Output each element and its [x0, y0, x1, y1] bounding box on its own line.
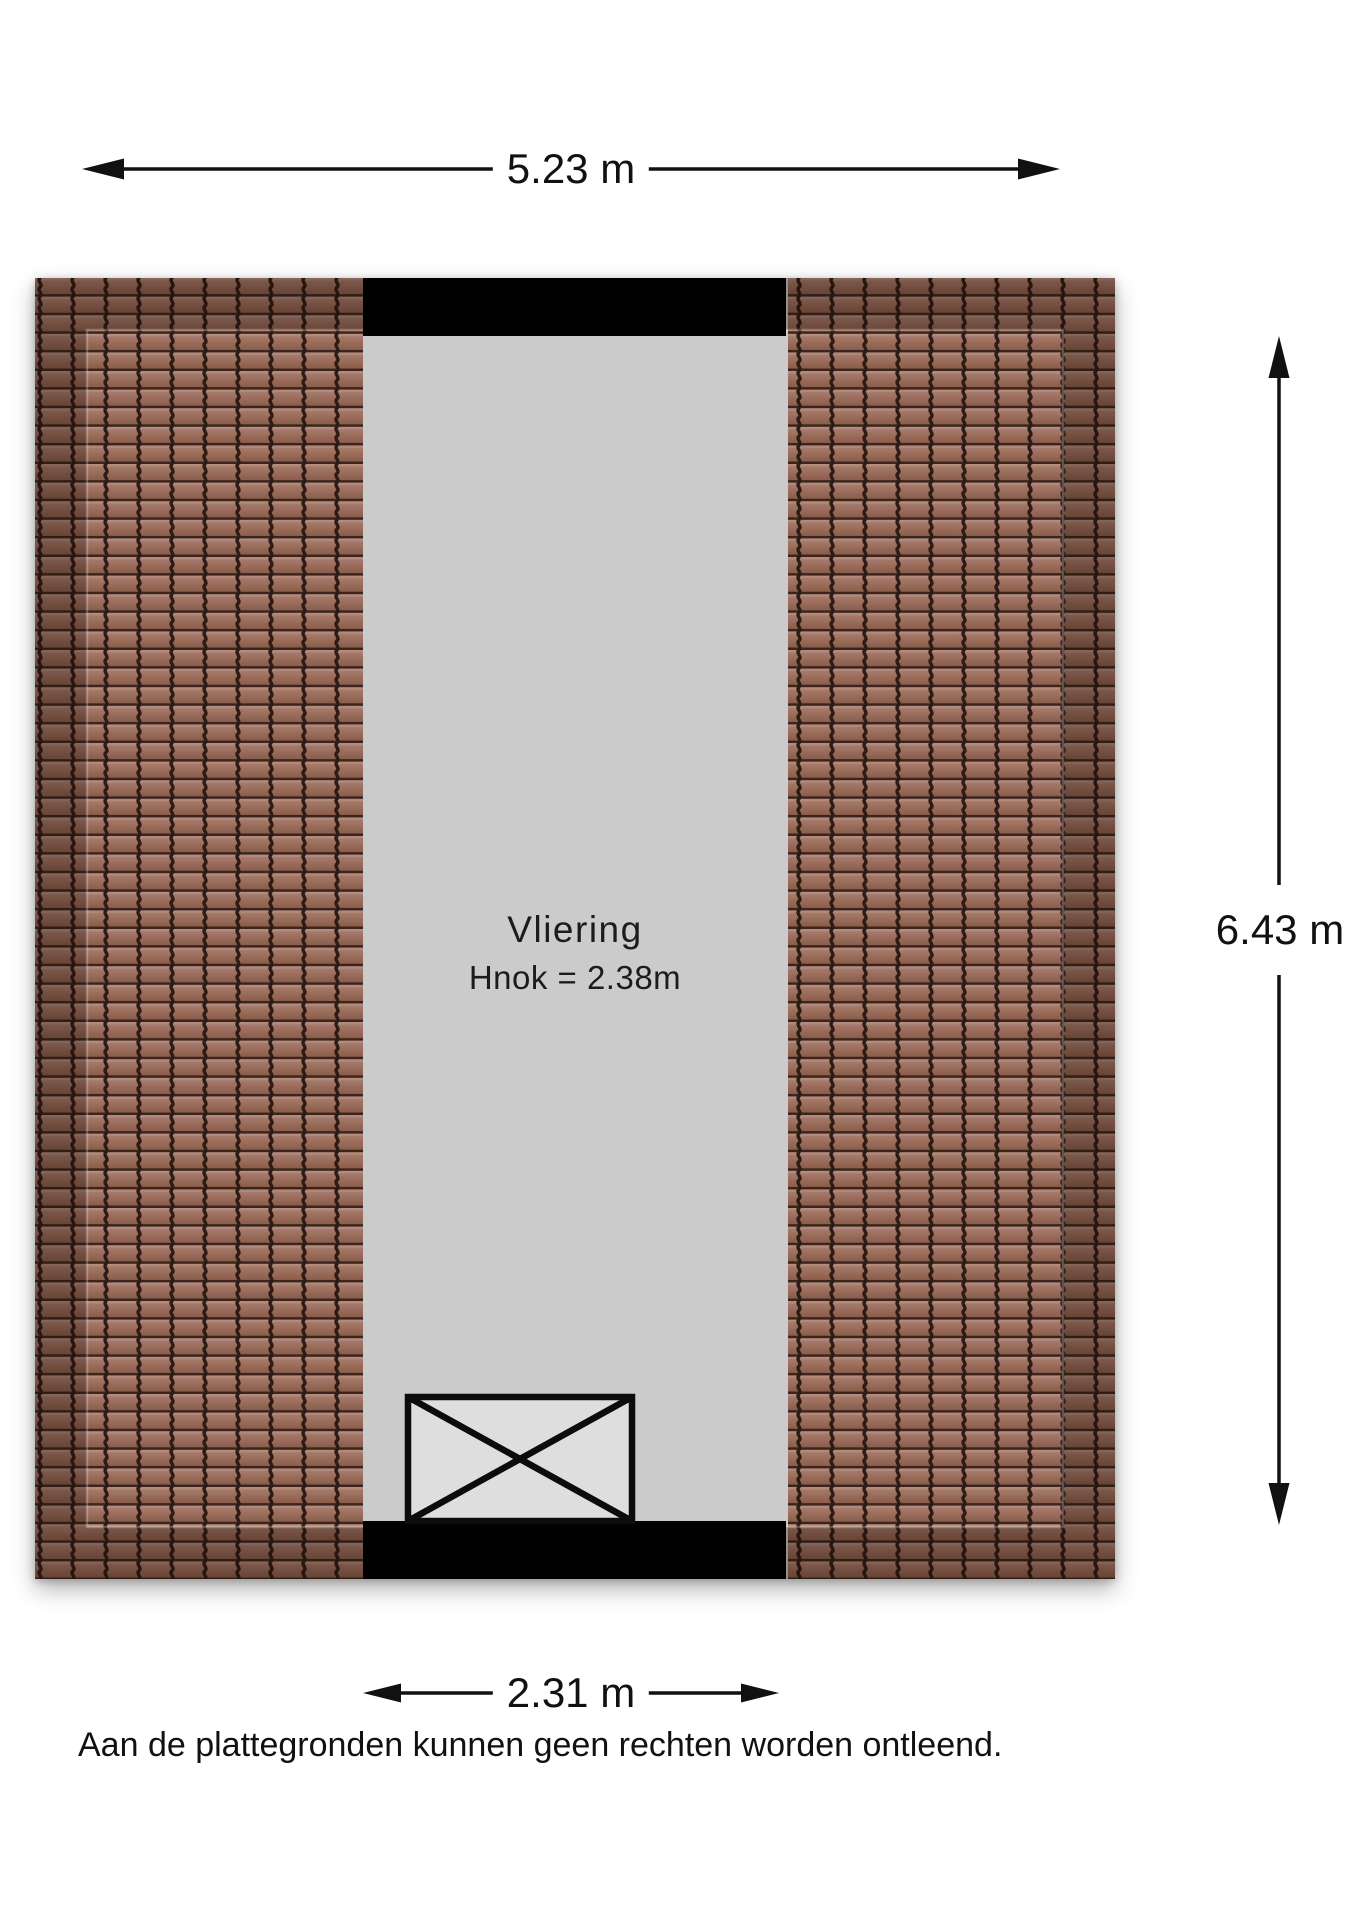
- wall-bottom: [363, 1521, 786, 1579]
- disclaimer-text: Aan de plattegronden kunnen geen rechten…: [78, 1726, 1002, 1765]
- dimension-label-bottom-width: 2.31 m: [493, 1662, 649, 1724]
- room-label: Vliering: [507, 909, 642, 951]
- wall-top: [363, 278, 786, 336]
- floorplan-page: 5.23 m 6.43 m 2.31 m Vliering Hnok = 2.3…: [0, 0, 1358, 1920]
- stair-opening-symbol: [408, 1397, 632, 1521]
- dimension-label-top-width: 5.23 m: [493, 138, 649, 200]
- room-height-label: Hnok = 2.38m: [469, 959, 681, 997]
- dimension-label-right-height: 6.43 m: [1202, 885, 1358, 975]
